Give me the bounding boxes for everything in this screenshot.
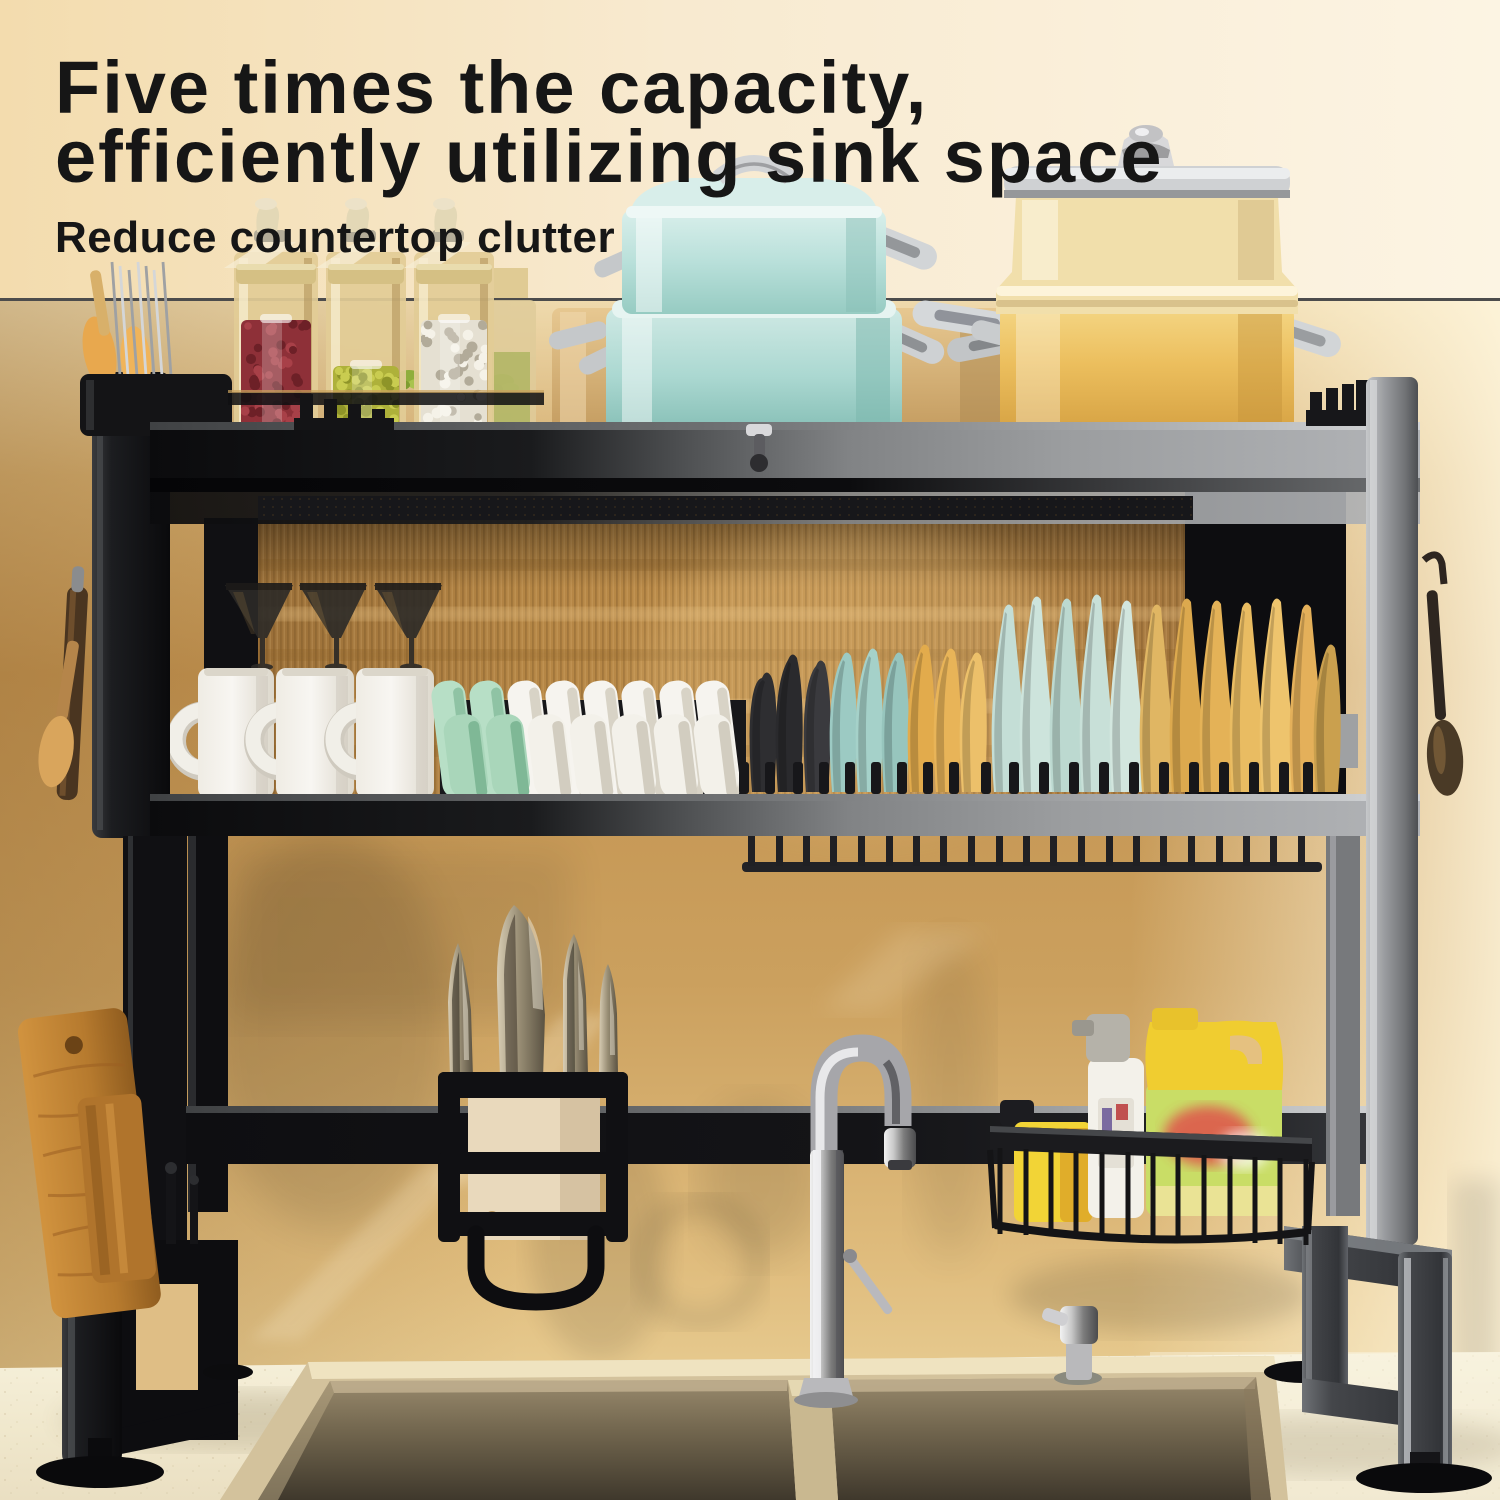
svg-text:efficiently utilizing sink spa: efficiently utilizing sink space xyxy=(55,115,1164,198)
svg-text:Reduce countertop clutter: Reduce countertop clutter xyxy=(55,213,615,262)
